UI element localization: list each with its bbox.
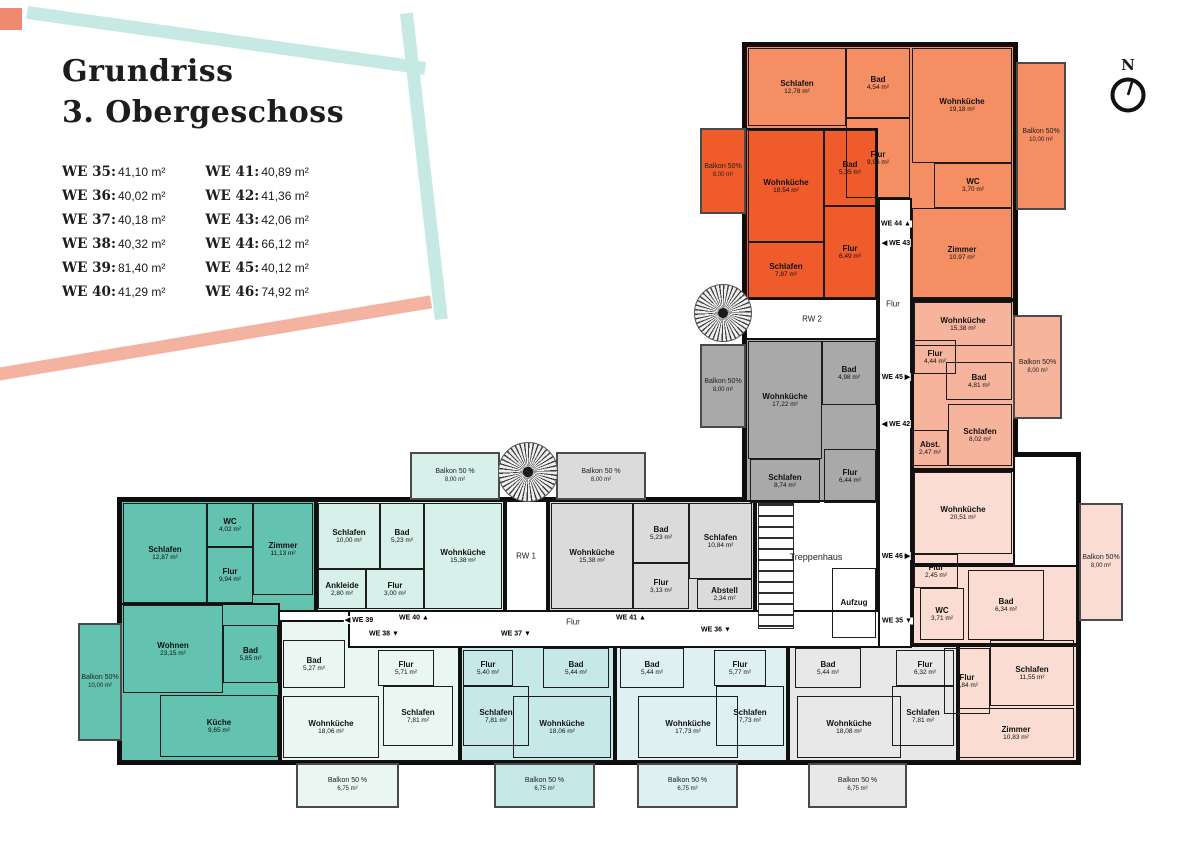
room-name: Bad [394,528,409,537]
room-name: Bad [841,365,856,374]
balcony-area: 8,00 m² [1027,368,1047,376]
room-42-wohnkueche: Wohnküche17,22 m² [748,341,822,459]
room-area: 15,38 m² [450,557,476,564]
room-area: 11,13 m² [270,550,295,557]
room-area: 4,02 m² [219,526,241,533]
corridor-label-flur: Flur [566,618,580,627]
legend-we-label: WE 41: [205,164,261,180]
room-38-schlafen: Schlafen7,81 m² [383,686,453,746]
legend-area-value: 41,36 m² [261,189,308,203]
room-name: Wohnküche [826,719,871,728]
room-area: 6,34 m² [995,606,1017,613]
room-area: 10,84 m² [708,542,734,549]
room-39-wc: WC4,02 m² [207,503,253,547]
room-39-wohnen: Wohnen23,15 m² [123,605,223,693]
room-name: Schlafen [780,79,813,88]
room-44-wc: WC3,70 m² [934,163,1012,208]
room-name: Wohnküche [569,548,614,557]
room-name: Wohnküche [762,392,807,401]
room-36-wohnkueche: Wohnküche17,73 m² [638,696,738,758]
room-area: 5,27 m² [303,665,325,672]
balcony-label: Balkon 50 % [525,777,564,786]
room-name: Schlafen [769,262,802,271]
legend-we-label: WE 45: [205,260,261,276]
room-name: Zimmer [1002,725,1031,734]
room-area: 4,98 m² [838,374,860,381]
room-area: 5,35 m² [839,169,861,176]
room-name: WC [966,177,979,186]
balcony-we42: Balkon 50%8,00 m² [700,344,746,428]
room-name: Schlafen [148,545,181,554]
legend-area-value: 41,29 m² [118,285,165,299]
room-area: 18,06 m² [318,728,344,735]
room-name: Wohnküche [665,719,710,728]
room-area: 15,38 m² [950,325,976,332]
room-45-bad: Bad4,81 m² [946,362,1012,400]
balcony-area: 10,00 m² [1029,137,1053,145]
room-name: Flur [480,660,495,669]
balcony-label: Balkon 50 % [328,777,367,786]
room-44-bad: Bad4,54 m² [846,48,910,118]
balcony-we38: Balkon 50 %6,75 m² [296,763,399,808]
room-area: 2,45 m² [925,572,947,579]
legend-row: WE 36:40,02 m² [62,188,165,204]
room-name: Bad [998,597,1013,606]
room-name: Wohnküche [939,97,984,106]
room-name: Flur [927,349,942,358]
legend-area-value: 40,89 m² [261,165,308,179]
balcony-area: 6,75 m² [337,786,357,794]
balcony-label: Balkon 50 % [435,468,474,477]
legend-we-label: WE 43: [205,212,261,228]
legend-we-label: WE 44: [205,236,261,252]
room-41-schlafen: Schlafen10,84 m² [689,503,752,579]
room-area: 5,23 m² [391,537,413,544]
legend-row: WE 43:42,06 m² [205,212,308,228]
balcony-area: 6,75 m² [534,786,554,794]
legend-area-value: 41,10 m² [118,165,165,179]
page-title: Grundriss 3. Obergeschoss [62,52,344,133]
room-name: Abst. [920,440,940,449]
room-area: 3,00 m² [384,590,406,597]
room-39-kueche: Küche9,65 m² [160,695,278,757]
door-label-12: WE 37 ▼ [500,631,532,638]
legend-we-label: WE 35: [62,164,118,180]
room-45-schlafen: Schlafen8,02 m² [948,404,1012,466]
room-name: Schlafen [733,708,766,717]
balcony-label: Balkon 50% [81,674,118,683]
room-area: 5,23 m² [650,534,672,541]
room-name: Wohnen [157,641,188,650]
room-name: Ankleide [325,581,358,590]
door-label-7: ◀ WE 39 [344,616,374,624]
room-name: Schlafen [906,708,939,717]
room-38-wohnkueche: Wohnküche18,06 m² [283,696,379,758]
room-name: Wohnküche [539,719,584,728]
room-42-bad: Bad4,98 m² [822,341,876,405]
balcony-label: Balkon 50% [1082,554,1119,563]
room-area: 23,15 m² [160,650,186,657]
door-label-8: WE 40 ▲ [398,615,430,622]
room-name: Flur [917,660,932,669]
door-label-4: ◀ WE 42 [881,420,911,428]
room-name: Bad [653,525,668,534]
balcony-area: 8,00 m² [445,477,465,485]
legend-we-label: WE 46: [205,284,261,300]
door-label-0: WE 44 ▲ [880,221,912,228]
balcony-area: 6,75 m² [677,786,697,794]
room-name: Bad [820,660,835,669]
balcony-we39: Balkon 50%10,00 m² [78,623,122,741]
north-label: N [1106,56,1150,74]
room-area: 4,44 m² [924,358,946,365]
room-46-wohnkueche: Wohnküche20,51 m² [914,472,1012,554]
balcony-we46: Balkon 50%8,00 m² [1079,503,1123,621]
north-arrow: N [1106,56,1150,120]
room-41-flur: Flur3,13 m² [633,563,689,609]
door-label-1: ◀ WE 43 [881,239,911,247]
room-37-wohnkueche: Wohnküche18,06 m² [513,696,611,758]
balcony-area: 6,75 m² [847,786,867,794]
door-label-5: WE 46 ▶ [881,552,911,560]
room-area: 5,40 m² [477,669,499,676]
room-area: 15,38 m² [579,557,605,564]
room-name: Bad [870,75,885,84]
room-42-schlafen: Schlafen8,74 m² [750,459,820,503]
legend-row: WE 39:81,40 m² [62,260,165,276]
legend-area-value: 66,12 m² [261,237,308,251]
room-39-flur: Flur9,94 m² [207,547,253,603]
balcony-label: Balkon 50 % [581,468,620,477]
room-name: Küche [207,718,231,727]
legend-row: WE 40:41,29 m² [62,284,165,300]
room-name: Flur [387,581,402,590]
balcony-label: Balkon 50% [704,163,741,172]
room-name: Aufzug [840,598,867,607]
room-area: 5,77 m² [729,669,751,676]
room-35-wohnkueche: Wohnküche18,08 m² [797,696,901,758]
room-name: Abstell [711,586,738,595]
balcony-label: Balkon 50 % [838,777,877,786]
door-label-13: WE 36 ▼ [700,627,732,634]
balcony-we36: Balkon 50 %6,75 m² [637,763,738,808]
room-36-flur: Flur5,77 m² [714,650,766,686]
balcony-area: 8,00 m² [1091,563,1111,571]
room-area: 2,34 m² [713,595,735,602]
room-area: 18,06 m² [549,728,575,735]
room-41-abstell: Abstell2,34 m² [697,579,752,609]
room-area: 7,81 m² [407,717,429,724]
door-label-6: WE 35 ▼ [881,618,913,625]
room-area: 6,84 m² [956,682,978,689]
room-43-schlafen: Schlafen7,87 m² [748,242,824,298]
room-area: 4,81 m² [968,382,990,389]
room-40-bad: Bad5,23 m² [380,503,424,569]
room-name: Schlafen [332,528,365,537]
area-label-treppenhaus: Treppenhaus [790,552,843,562]
room-area: 6,32 m² [914,669,936,676]
room-area: 10,97 m² [949,254,975,261]
room-area: 9,94 m² [219,576,241,583]
room-area: 9,65 m² [208,727,230,734]
room-38-bad: Bad5,27 m² [283,640,345,688]
legend-area-value: 81,40 m² [118,261,165,275]
area-label-rw1: RW 1 [516,552,536,561]
room-name: Schlafen [479,708,512,717]
balcony-area: 10,00 m² [88,683,112,691]
room-name: WC [223,517,236,526]
room-name: Schlafen [401,708,434,717]
room-area: 2,80 m² [331,590,353,597]
room-name: Bad [644,660,659,669]
legend-area-value: 74,92 m² [261,285,308,299]
room-37-bad: Bad5,44 m² [543,648,609,688]
room-name: Bad [568,660,583,669]
room-area: 17,73 m² [675,728,701,735]
room-name: Wohnküche [940,316,985,325]
room-46-flur1: Flur2,45 m² [914,554,958,588]
door-label-9: WE 38 ▼ [368,631,400,638]
title-line-2: 3. Obergeschoss [62,93,344,134]
room-name: Flur [928,563,943,572]
door-label-11: WE 41 ▲ [615,615,647,622]
door-label-3: WE 45 ▶ [881,373,911,381]
tree-icon [694,284,752,342]
room-area: 8,74 m² [774,482,796,489]
legend-area-value: 40,32 m² [118,237,165,251]
room-name: Flur [842,468,857,477]
room-40-flur: Flur3,00 m² [366,569,424,609]
balcony-we44: Balkon 50%10,00 m² [1016,62,1066,210]
room-area: 18,54 m² [773,187,799,194]
legend-row: WE 42:41,36 m² [205,188,308,204]
legend-column-0: WE 35:41,10 m²WE 36:40,02 m²WE 37:40,18 … [62,164,165,300]
room-name: Flur [959,673,974,682]
legend-row: WE 38:40,32 m² [62,236,165,252]
apartment-legend: WE 35:41,10 m²WE 36:40,02 m²WE 37:40,18 … [62,164,309,300]
room-area: 17,22 m² [772,401,798,408]
tree-icon [498,442,558,502]
room-name: Schlafen [768,473,801,482]
room-name: Flur [222,567,237,576]
legend-area-value: 42,06 m² [261,213,308,227]
legend-row: WE 37:40,18 m² [62,212,165,228]
room-35-bad: Bad5,44 m² [795,648,861,688]
legend-we-label: WE 38: [62,236,118,252]
legend-we-label: WE 40: [62,284,118,300]
north-arrow-icon [1108,75,1148,115]
room-name: Bad [842,160,857,169]
room-35-flur: Flur6,32 m² [896,650,954,686]
room-area: 7,73 m² [739,717,761,724]
balcony-area: 8,00 m² [713,172,733,180]
room-area: 4,54 m² [867,84,889,91]
room-area: 10,83 m² [1003,734,1029,741]
room-35-schlafen: Schlafen7,81 m² [892,686,954,746]
room-aufzug: Aufzug [832,568,876,638]
stairs-icon [758,503,794,629]
room-name: Bad [971,373,986,382]
room-name: Zimmer [269,541,298,550]
room-38-flur: Flur5,71 m² [378,650,434,686]
room-area: 6,49 m² [839,253,861,260]
legend-row: WE 41:40,89 m² [205,164,308,180]
room-area: 5,85 m² [239,655,261,662]
room-area: 11,55 m² [1019,674,1044,681]
room-name: Flur [732,660,747,669]
room-name: Wohnküche [308,719,353,728]
room-37-flur: Flur5,40 m² [463,650,513,686]
room-name: Flur [653,578,668,587]
room-area: 10,00 m² [336,537,362,544]
room-area: 3,71 m² [931,615,953,622]
room-area: 12,87 m² [152,554,178,561]
room-name: Schlafen [704,533,737,542]
room-name: Wohnküche [440,548,485,557]
balcony-we45: Balkon 50%8,00 m² [1013,315,1062,419]
room-area: 20,51 m² [950,514,976,521]
balcony-label: Balkon 50 % [668,777,707,786]
room-area: 5,71 m² [395,669,417,676]
balcony-area: 8,00 m² [713,387,733,395]
room-area: 12,78 m² [784,88,810,95]
legend-column-1: WE 41:40,89 m²WE 42:41,36 m²WE 43:42,06 … [205,164,308,300]
room-46-zimmer: Zimmer10,83 m² [958,708,1074,758]
room-40-ankleide: Ankleide2,80 m² [318,569,366,609]
room-46-bad: Bad6,34 m² [968,570,1044,640]
area-label-rw2: RW 2 [802,315,822,324]
balcony-label: Balkon 50% [704,378,741,387]
room-42-flur: Flur6,44 m² [824,449,876,503]
legend-we-label: WE 37: [62,212,118,228]
room-name: WC [935,606,948,615]
legend-row: WE 44:66,12 m² [205,236,308,252]
legend-row: WE 46:74,92 m² [205,284,308,300]
room-39-zimmer: Zimmer11,13 m² [253,503,313,595]
balcony-we41: Balkon 50 %8,00 m² [556,452,646,500]
legend-area-value: 40,02 m² [118,189,165,203]
room-name: Zimmer [948,245,977,254]
legend-we-label: WE 42: [205,188,261,204]
room-44-zimmer: Zimmer10,97 m² [912,208,1012,298]
room-area: 3,13 m² [650,587,672,594]
room-name: Wohnküche [763,178,808,187]
room-43-wohnkueche: Wohnküche18,54 m² [748,130,824,242]
room-area: 7,81 m² [485,717,507,724]
room-name: Wohnküche [940,505,985,514]
legend-we-label: WE 36: [62,188,118,204]
room-area: 6,44 m² [839,477,861,484]
room-36-bad: Bad5,44 m² [620,648,684,688]
room-name: Bad [243,646,258,655]
room-area: 18,08 m² [836,728,862,735]
balcony-area: 8,00 m² [591,477,611,485]
room-area: 5,44 m² [817,669,839,676]
room-area: 7,81 m² [912,717,934,724]
room-43-bad: Bad5,35 m² [824,130,876,206]
balcony-we35: Balkon 50 %6,75 m² [808,763,907,808]
room-44-wohnkueche: Wohnküche19,18 m² [912,48,1012,163]
balcony-label: Balkon 50% [1022,128,1059,137]
title-line-1: Grundriss [62,52,344,93]
room-44-schlafen: Schlafen12,78 m² [748,48,846,126]
room-41-bad: Bad5,23 m² [633,503,689,563]
corridor-label-flur: Flur [886,300,900,309]
room-area: 2,47 m² [919,449,941,456]
legend-row: WE 45:40,12 m² [205,260,308,276]
room-name: Flur [842,244,857,253]
room-40-wohnkueche: Wohnküche15,38 m² [424,503,502,609]
room-area: 5,44 m² [565,669,587,676]
room-area: 19,18 m² [949,106,975,113]
balcony-we43: Balkon 50%8,00 m² [700,128,746,214]
room-45-abst: Abst.2,47 m² [912,430,948,466]
room-name: Schlafen [1015,665,1048,674]
legend-area-value: 40,12 m² [261,261,308,275]
room-name: Flur [398,660,413,669]
room-area: 7,87 m² [775,271,797,278]
room-39-schlafen: Schlafen12,87 m² [123,503,207,603]
balcony-label: Balkon 50% [1019,359,1056,368]
room-43-flur: Flur6,49 m² [824,206,876,298]
room-46-schlafen: Schlafen11,55 m² [990,640,1074,706]
balcony-we37: Balkon 50 %6,75 m² [494,763,595,808]
room-41-wohnkueche: Wohnküche15,38 m² [551,503,633,609]
balcony-we40: Balkon 50 %8,00 m² [410,452,500,500]
room-46-wc: WC3,71 m² [920,588,964,640]
room-area: 8,02 m² [969,436,991,443]
legend-we-label: WE 39: [62,260,118,276]
room-name: Bad [306,656,321,665]
room-40-schlafen: Schlafen10,00 m² [318,503,380,569]
room-name: Schlafen [963,427,996,436]
legend-row: WE 35:41,10 m² [62,164,165,180]
room-area: 3,70 m² [962,186,984,193]
room-area: 5,44 m² [641,669,663,676]
legend-area-value: 40,18 m² [118,213,165,227]
room-39-bad: Bad5,85 m² [223,625,278,683]
